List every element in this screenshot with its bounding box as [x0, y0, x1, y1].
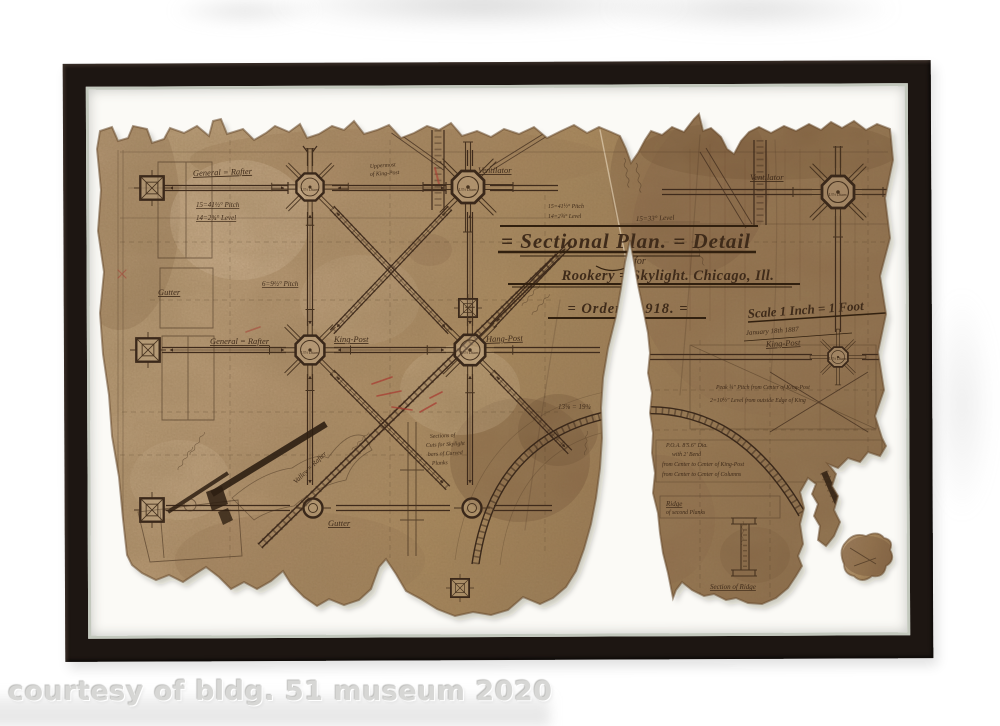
- label-dim: 13⅝ = 19¾: [558, 403, 591, 411]
- label-level: 15=33° Level: [636, 214, 675, 223]
- label-gutter: Gutter: [328, 518, 351, 528]
- title-subject: Rookery = Skylight. Chicago, Ill.: [561, 268, 775, 284]
- label-hang-post: Hang-Post: [485, 333, 524, 344]
- label-level: 14=2¾° Level: [196, 214, 236, 222]
- drawing-artifact: = Sectional Plan. = Detail for Rookery =…: [0, 0, 1000, 718]
- hub-diameter: 13½ Diam.: [300, 187, 319, 192]
- note-center: Sections of: [430, 432, 457, 440]
- label-ventilator: Ventilator: [478, 165, 512, 175]
- order-number: = Order № 918. =: [567, 301, 688, 317]
- hub-diameter: 13½ Diam.: [458, 187, 477, 192]
- label-gutter: Gutter: [158, 287, 181, 297]
- note-arc: with 2′ Bend: [672, 452, 701, 458]
- label-ridge-sub: of second Planks: [666, 509, 706, 516]
- label-king-post: King-Post: [765, 337, 802, 349]
- note-center: Planks: [431, 460, 449, 467]
- label-pitch: 15=41½° Pitch: [548, 203, 584, 210]
- hub-diameter: 13½ Diam.: [828, 356, 847, 361]
- note-arc: from Center to Center of Columns: [662, 471, 742, 478]
- title-text: = Sectional Plan. = Detail: [501, 229, 751, 253]
- note-arc: from Center to Center of King-Post: [662, 461, 744, 468]
- label-pitch-mid: 6=9½° Pitch: [262, 280, 299, 288]
- hub-diameter: 13½ Diam.: [828, 192, 847, 197]
- note-level: 2=10½″ Level from outside Edge of King: [710, 397, 806, 404]
- label-level: 14=2¾° Level: [548, 213, 582, 220]
- label-ridge: Ridge: [665, 500, 682, 508]
- label-section-ridge: Section of Ridge: [710, 583, 756, 591]
- note-arc: P.O.A. 8′5.6″ Dia.: [665, 443, 708, 449]
- museum-watermark: courtesy of bldg. 51 museum 2020: [8, 676, 553, 707]
- label-general-rafter: General = Rafter: [193, 166, 253, 178]
- torn-paper: = Sectional Plan. = Detail for Rookery =…: [60, 85, 910, 630]
- hub-diameter: 13½ Diam.: [460, 350, 479, 355]
- title-for: for: [634, 256, 646, 267]
- label-general-rafter: General = Rafter: [210, 336, 270, 346]
- label-pitch: 15=41½° Pitch: [196, 201, 240, 209]
- label-ventilator: Ventilator: [750, 172, 784, 182]
- note-pitch: Peak ¾″ Pitch from Center of King-Post: [715, 384, 810, 391]
- label-king-post: King-Post: [333, 334, 369, 344]
- hub-diameter: 13½ Diam.: [300, 350, 319, 355]
- dim-left: 14=4¾ Pitch: [81, 247, 94, 279]
